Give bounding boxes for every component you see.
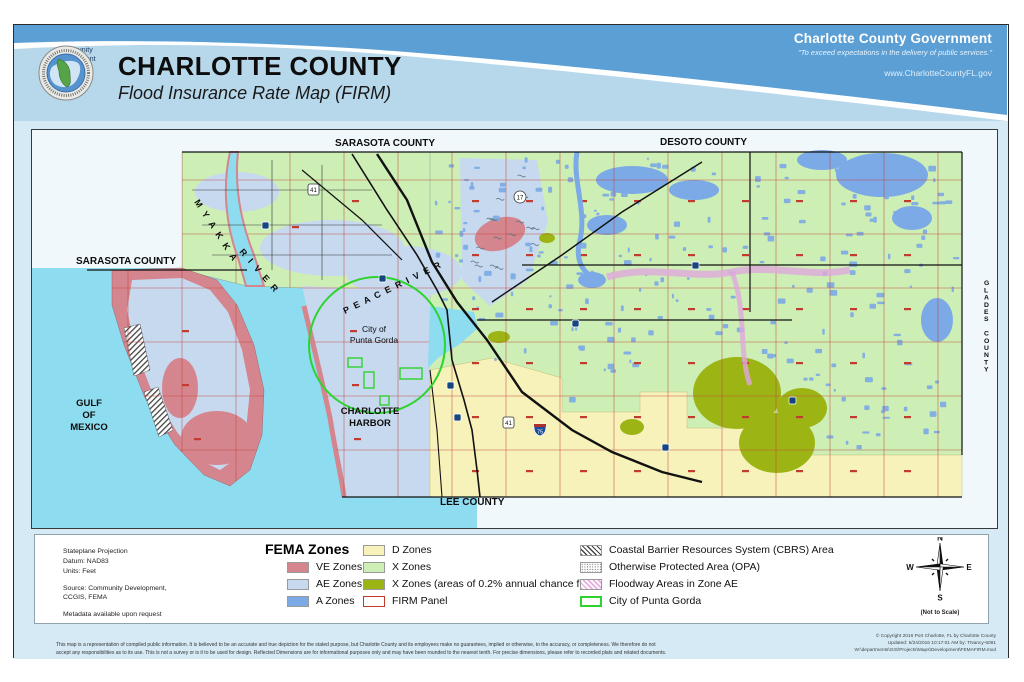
legend-item-cbrs: Coastal Barrier Resources System (CBRS) … xyxy=(580,544,834,556)
a-swatch xyxy=(287,596,309,607)
legend-item-d: D Zones xyxy=(363,544,432,556)
legend-item-ve: VE Zones xyxy=(287,561,362,573)
sarasota-left-label: SARASOTA COUNTY xyxy=(76,256,176,267)
header: Charlotte County Government "To exceed e… xyxy=(14,25,1008,121)
svg-text:41: 41 xyxy=(310,188,317,194)
legend-item-x02: X Zones (areas of 0.2% annual chance flo… xyxy=(363,578,603,590)
legend-item-a: A Zones xyxy=(287,595,355,607)
legend-panel: Stateplane Projection Datum: NAD83 Units… xyxy=(34,534,989,624)
page-title: CHARLOTTE COUNTY xyxy=(118,51,402,82)
us41-shield-north: 41 xyxy=(308,184,319,195)
x02-swatch xyxy=(363,579,385,590)
gulf-label-3: MEXICO xyxy=(70,422,107,433)
us41-shield-south: 41 xyxy=(503,417,514,428)
page-subtitle: Flood Insurance Rate Map (FIRM) xyxy=(118,83,402,104)
info-projection: Stateplane Projection xyxy=(63,547,167,557)
copyright-line-2: Updated: 5/24/2016 10:17:01 AM by: TNanc… xyxy=(855,640,996,647)
firm-map: 41 41 17 75 SARASOTA COUNTY DESOTO COUNT… xyxy=(32,130,997,528)
info-source-2: CCGIS, FEMA xyxy=(63,593,167,603)
floodway-label: Floodway Areas in Zone AE xyxy=(609,578,738,590)
compass-n: N xyxy=(937,537,943,543)
x02-label: X Zones (areas of 0.2% annual chance flo… xyxy=(392,578,603,590)
ve-swatch xyxy=(287,562,309,573)
info-units: Units: Feet xyxy=(63,567,167,577)
punta-gorda-label-1: City of xyxy=(362,324,387,334)
svg-text:17: 17 xyxy=(517,196,524,202)
not-to-scale-note: (Not to Scale) xyxy=(897,610,983,616)
legend-item-ae: AE Zones xyxy=(287,578,362,590)
gov-name: Charlotte County Government xyxy=(794,31,992,46)
cbrs-swatch xyxy=(580,545,602,556)
compass-s: S xyxy=(937,594,943,603)
x-label: X Zones xyxy=(392,561,431,573)
harbor-label-1: CHARLOTTE xyxy=(341,406,400,417)
disclaimer: This map is a representation of compiled… xyxy=(56,642,936,657)
disclaimer-line-1: This map is a representation of compiled… xyxy=(56,642,936,650)
punta-gorda-label-2: Punta Gorda xyxy=(350,335,398,345)
map-sheet: Charlotte County Government "To exceed e… xyxy=(13,24,1009,658)
firm-panel-label: FIRM Panel xyxy=(392,595,447,607)
county-seal: Community Development xyxy=(38,45,112,65)
info-datum: Datum: NAD83 xyxy=(63,557,167,567)
map-frame: 41 41 17 75 SARASOTA COUNTY DESOTO COUNT… xyxy=(31,129,998,529)
svg-text:41: 41 xyxy=(505,421,512,427)
compass-e: E xyxy=(966,563,972,572)
legend-item-opa: Otherwise Protected Area (OPA) xyxy=(580,561,760,573)
legend-item-floodway: Floodway Areas in Zone AE xyxy=(580,578,738,590)
firm-panel-swatch xyxy=(363,596,385,607)
county-seal-icon xyxy=(38,45,94,101)
a-label: A Zones xyxy=(316,595,355,607)
title-block: CHARLOTTE COUNTY Flood Insurance Rate Ma… xyxy=(118,51,402,104)
gov-tagline: "To exceed expectations in the delivery … xyxy=(794,48,992,57)
legend-item-x: X Zones xyxy=(363,561,431,573)
legend-info: Stateplane Projection Datum: NAD83 Units… xyxy=(63,547,167,620)
gov-block: Charlotte County Government "To exceed e… xyxy=(794,31,992,78)
info-source-1: Source: Community Development, xyxy=(63,584,167,594)
legend-item-punta-gorda: City of Punta Gorda xyxy=(580,595,701,607)
compass-icon: N E S W xyxy=(897,537,983,603)
harbor-label-2: HARBOR xyxy=(349,418,391,429)
info-metadata: Metadata available upon request xyxy=(63,610,167,620)
lee-label: LEE COUNTY xyxy=(440,497,505,508)
copyright-block: © Copyright 2016 Port Charlotte, FL by C… xyxy=(855,633,996,655)
compass-w: W xyxy=(906,563,914,572)
disclaimer-line-2: accept any responsibilities as to its us… xyxy=(56,650,936,658)
d-swatch xyxy=(363,545,385,556)
gulf-label-2: OF xyxy=(82,410,95,421)
floodway-swatch xyxy=(580,579,602,590)
compass-rose: N E S W (Not to Scale) xyxy=(897,537,983,616)
punta-gorda-swatch xyxy=(580,596,602,607)
legend-item-firm-panel: FIRM Panel xyxy=(363,595,447,607)
opa-swatch xyxy=(580,562,602,573)
svg-text:75: 75 xyxy=(537,430,543,436)
gov-url: www.CharlotteCountyFL.gov xyxy=(794,68,992,78)
punta-gorda-label: City of Punta Gorda xyxy=(609,595,701,607)
ae-label: AE Zones xyxy=(316,578,362,590)
opa-label: Otherwise Protected Area (OPA) xyxy=(609,561,760,573)
cbrs-label: Coastal Barrier Resources System (CBRS) … xyxy=(609,544,834,556)
copyright-line-3: W:\departments\GIS\Projects\Maps\Develop… xyxy=(855,647,996,654)
desoto-label: DESOTO COUNTY xyxy=(660,137,747,148)
gulf-label-1: GULF xyxy=(76,398,102,409)
sarasota-top-label: SARASOTA COUNTY xyxy=(335,138,435,149)
ae-swatch xyxy=(287,579,309,590)
d-label: D Zones xyxy=(392,544,432,556)
us17-shield: 17 xyxy=(514,191,526,203)
legend-title: FEMA Zones xyxy=(265,541,349,557)
ve-label: VE Zones xyxy=(316,561,362,573)
x-swatch xyxy=(363,562,385,573)
copyright-line-1: © Copyright 2016 Port Charlotte, FL by C… xyxy=(855,633,996,640)
